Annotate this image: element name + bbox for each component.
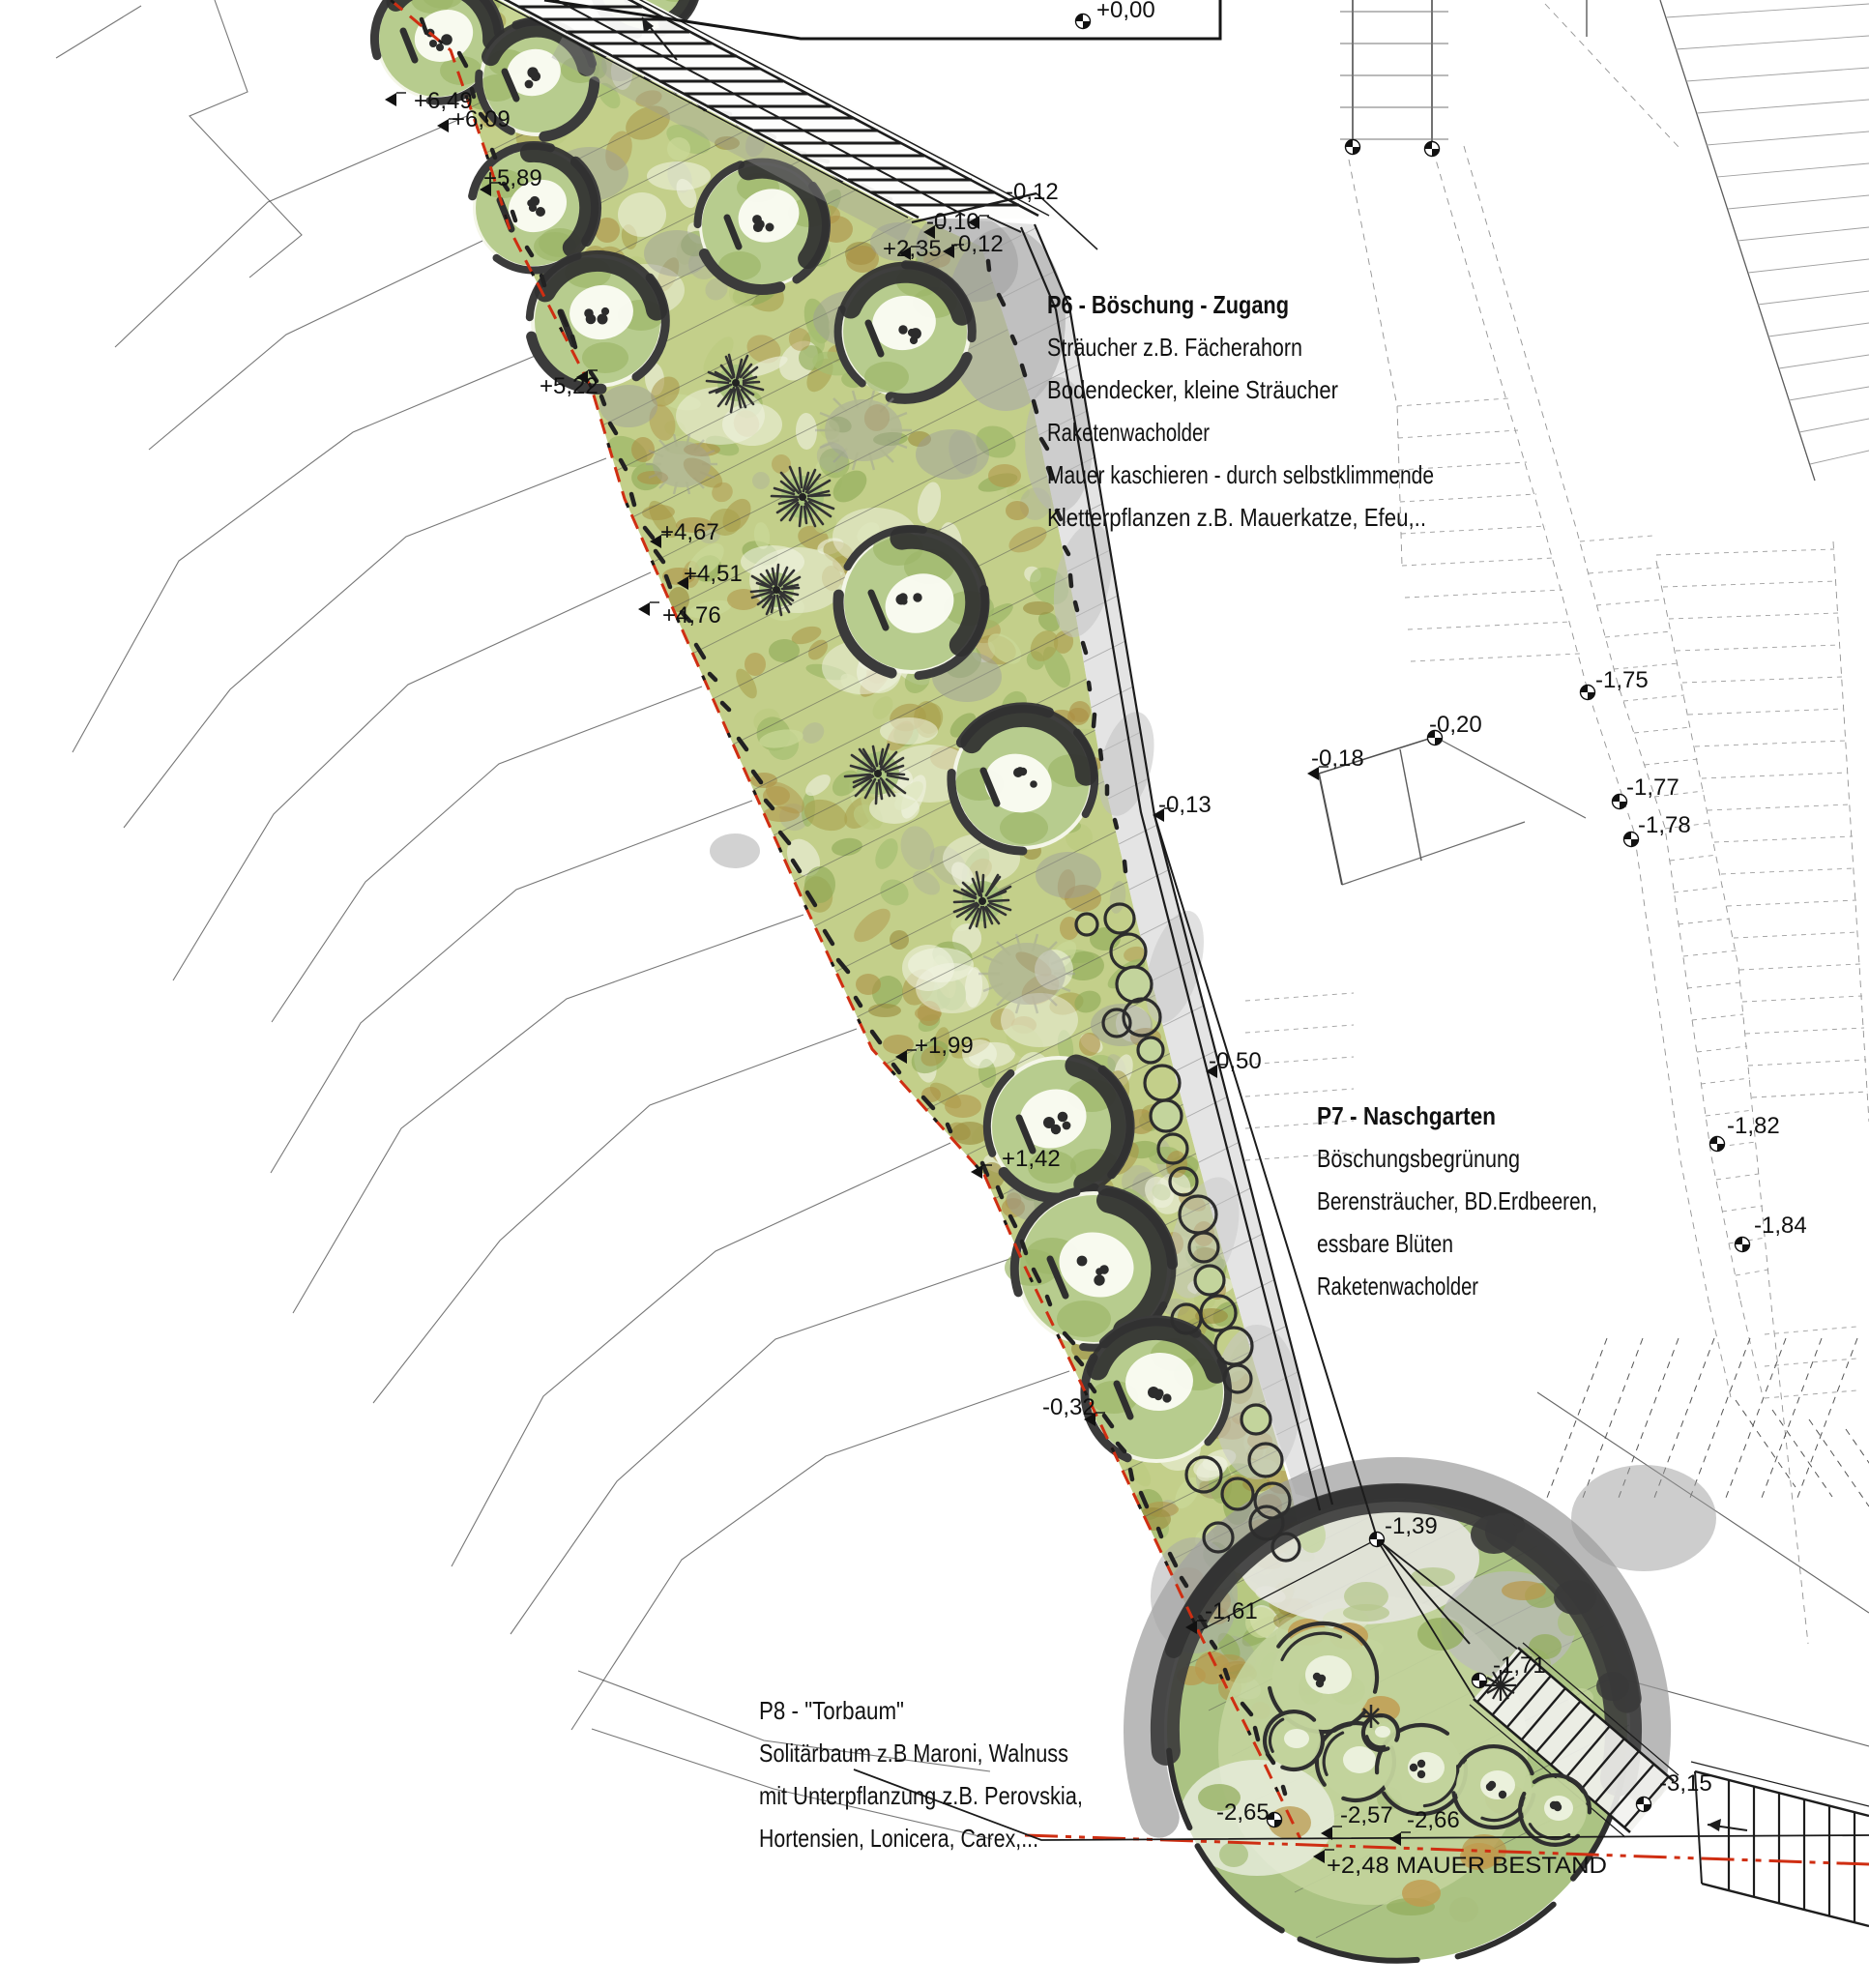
svg-text:Raketenwacholder: Raketenwacholder bbox=[1317, 1272, 1478, 1301]
svg-text:-1,61: -1,61 bbox=[1205, 1598, 1258, 1624]
svg-text:P8 - "Torbaum": P8 - "Torbaum" bbox=[759, 1696, 904, 1725]
svg-text:+2,35: +2,35 bbox=[883, 236, 942, 262]
svg-text:-1,71: -1,71 bbox=[1493, 1652, 1546, 1679]
svg-text:+5,22: +5,22 bbox=[540, 373, 599, 399]
svg-text:-1,77: -1,77 bbox=[1626, 775, 1679, 801]
svg-text:+4,76: +4,76 bbox=[662, 602, 721, 629]
svg-text:+5,89: +5,89 bbox=[483, 165, 542, 191]
svg-text:Solitärbaum z.B Maroni, Walnus: Solitärbaum z.B Maroni, Walnuss bbox=[759, 1739, 1068, 1768]
svg-text:-3,15: -3,15 bbox=[1659, 1770, 1712, 1797]
svg-text:P7 - Naschgarten: P7 - Naschgarten bbox=[1317, 1101, 1496, 1130]
svg-text:-0,32: -0,32 bbox=[1042, 1394, 1095, 1420]
svg-text:Raketenwacholder: Raketenwacholder bbox=[1047, 418, 1210, 447]
svg-text:-2,66: -2,66 bbox=[1407, 1807, 1460, 1833]
svg-text:+0,00: +0,00 bbox=[1096, 0, 1155, 23]
svg-text:Mauer kaschieren - durch selb: Mauer kaschieren - durch selbstklimmende bbox=[1047, 460, 1434, 489]
svg-text:Berensträucher, BD.Erdbeeren,: Berensträucher, BD.Erdbeeren, bbox=[1317, 1186, 1597, 1215]
svg-text:+2,48 MAUER BESTAND: +2,48 MAUER BESTAND bbox=[1327, 1853, 1607, 1879]
svg-text:+4,51: +4,51 bbox=[684, 561, 743, 587]
svg-text:-0,12: -0,12 bbox=[1006, 179, 1059, 205]
svg-text:Hortensien, Lonicera, Carex,..: Hortensien, Lonicera, Carex,... bbox=[759, 1824, 1038, 1853]
svg-text:Böschungsbegrünung: Böschungsbegrünung bbox=[1317, 1144, 1520, 1173]
svg-text:-0,13: -0,13 bbox=[1158, 792, 1212, 818]
svg-text:-1,82: -1,82 bbox=[1727, 1113, 1780, 1139]
svg-text:mit Unterpflanzung z.B. Perovs: mit Unterpflanzung z.B. Perovskia, bbox=[759, 1781, 1083, 1810]
svg-text:-1,84: -1,84 bbox=[1754, 1213, 1807, 1239]
svg-text:Kletterpflanzen z.B. Mauerkatz: Kletterpflanzen z.B. Mauerkatze, Efeu,.. bbox=[1047, 503, 1426, 532]
svg-text:-2,65: -2,65 bbox=[1216, 1799, 1270, 1826]
svg-text:+1,42: +1,42 bbox=[1002, 1146, 1061, 1172]
svg-text:P6 - Böschung - Zugang: P6 - Böschung - Zugang bbox=[1047, 290, 1289, 319]
svg-text:Sträucher z.B. Fächerahorn: Sträucher z.B. Fächerahorn bbox=[1047, 333, 1302, 362]
svg-text:Bodendecker, kleine Sträucher: Bodendecker, kleine Sträucher bbox=[1047, 375, 1338, 404]
svg-text:-1,39: -1,39 bbox=[1385, 1513, 1438, 1539]
svg-text:+6,09: +6,09 bbox=[452, 106, 511, 132]
svg-text:-0,18: -0,18 bbox=[1311, 745, 1364, 772]
svg-text:-1,78: -1,78 bbox=[1638, 812, 1691, 838]
svg-text:-2,57: -2,57 bbox=[1340, 1802, 1393, 1828]
svg-text:+1,99: +1,99 bbox=[915, 1033, 974, 1059]
svg-text:-0,20: -0,20 bbox=[1429, 712, 1482, 738]
svg-text:essbare Blüten: essbare Blüten bbox=[1317, 1229, 1453, 1258]
svg-text:+4,67: +4,67 bbox=[660, 519, 719, 545]
svg-text:-1,75: -1,75 bbox=[1595, 667, 1649, 693]
svg-text:-0,12: -0,12 bbox=[950, 231, 1004, 257]
svg-text:-0,50: -0,50 bbox=[1209, 1048, 1262, 1074]
